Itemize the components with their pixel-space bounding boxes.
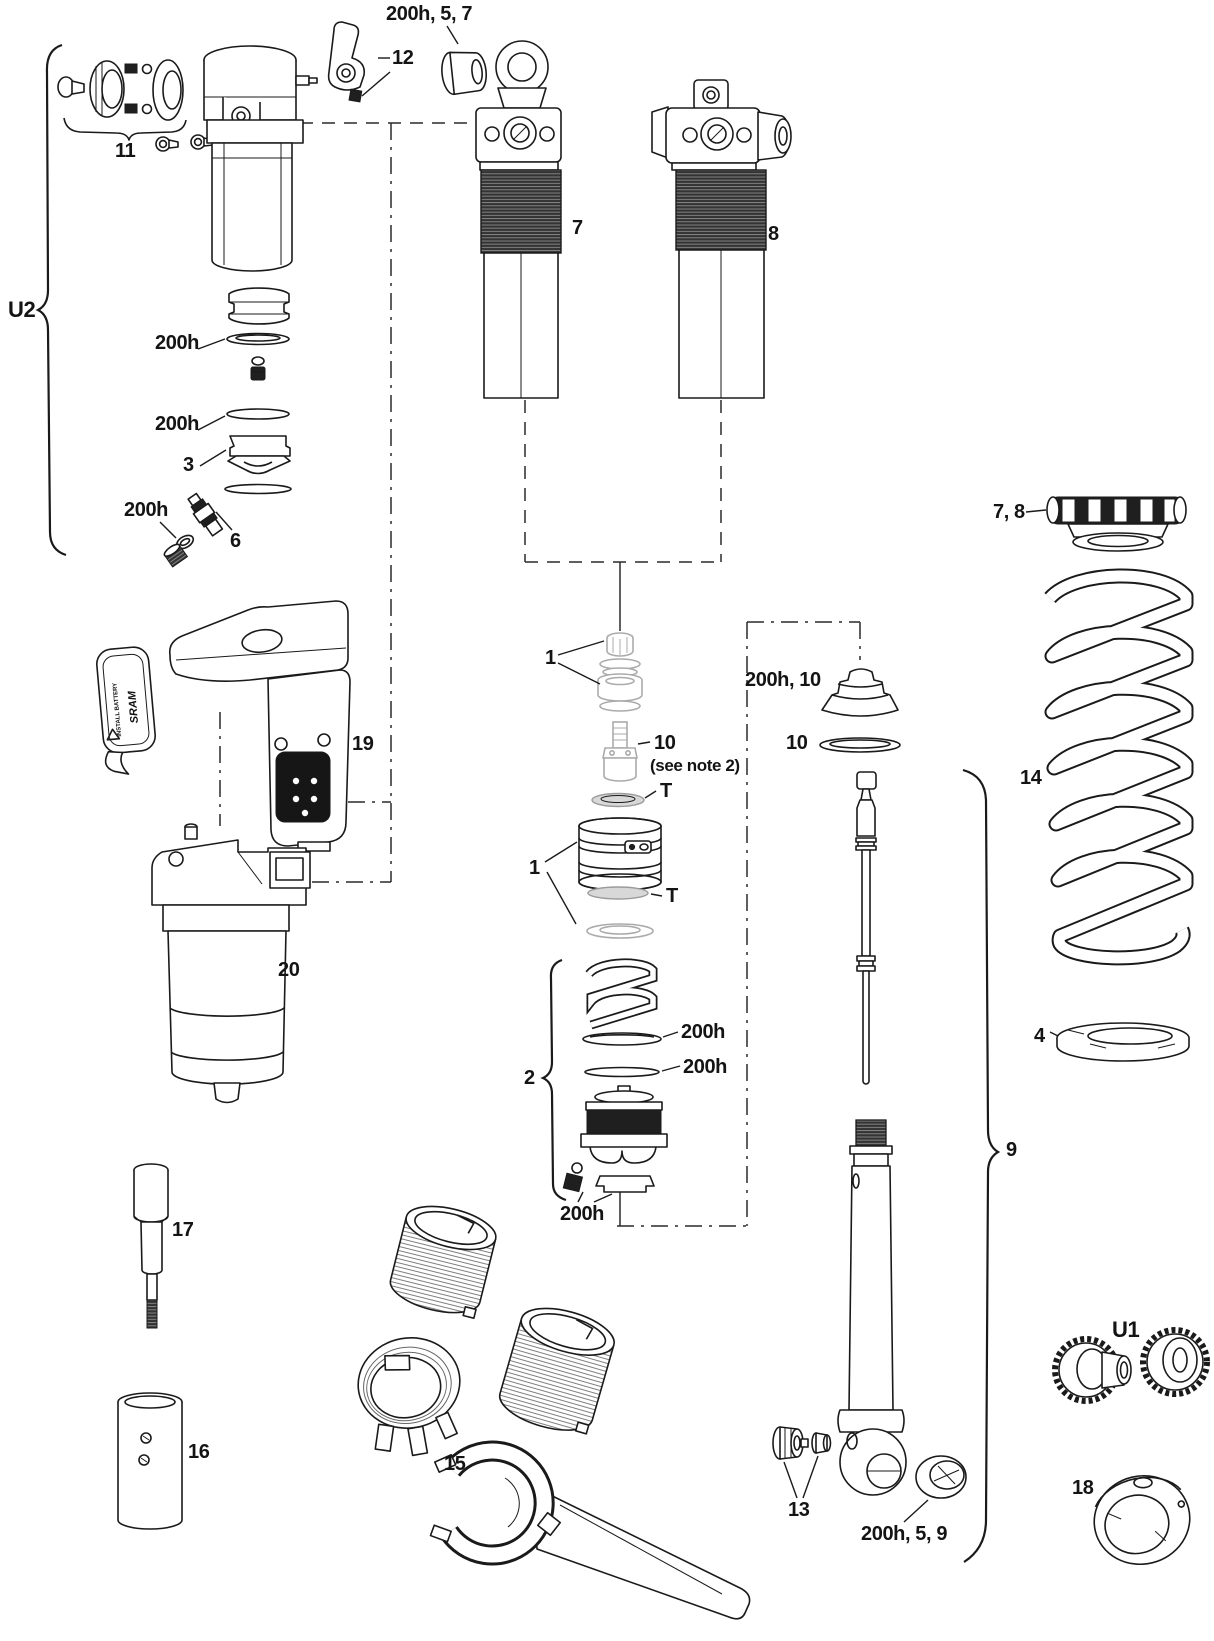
t-washer-lower-drawing bbox=[588, 887, 648, 899]
top-bushing-drawing bbox=[440, 49, 488, 95]
air-cap-group-drawing bbox=[598, 633, 642, 711]
washer-ten-drawing bbox=[820, 738, 900, 752]
label-eyelet-bushing: 200h, 5, 9 bbox=[861, 1524, 947, 1545]
label-top-hardware: 200h, 5, 7 bbox=[386, 4, 472, 25]
rebound-piston-drawing bbox=[563, 1086, 667, 1192]
shock-body-7-drawing bbox=[476, 41, 561, 398]
label-oring-valve: 200h bbox=[124, 500, 168, 521]
label-piston-1b: 1 bbox=[529, 858, 540, 879]
label-body-7: 7 bbox=[572, 218, 583, 239]
t-washer-upper-drawing bbox=[592, 794, 644, 807]
wiper-seal-drawing bbox=[822, 669, 898, 716]
label-body-8: 8 bbox=[768, 224, 779, 245]
label-tool-16: 16 bbox=[188, 1442, 209, 1463]
wrench-drawing bbox=[430, 1451, 749, 1619]
main-piston-drawing bbox=[579, 818, 661, 890]
spring-seat-drawing bbox=[1057, 1023, 1189, 1061]
rebound-brace bbox=[543, 960, 566, 1200]
motor-assembly-drawing bbox=[204, 46, 317, 271]
valve-core-drawing bbox=[603, 722, 637, 781]
label-t-upper: T bbox=[660, 781, 672, 802]
label-collar-78: 7, 8 bbox=[993, 502, 1025, 523]
retainer-cup-drawing bbox=[1085, 1466, 1199, 1575]
tool-rod-drawing bbox=[134, 1164, 168, 1328]
label-seal-head-3: 3 bbox=[183, 455, 194, 476]
coil-spring-drawing bbox=[1050, 576, 1186, 958]
sleeve-a-drawing bbox=[386, 1198, 500, 1320]
label-seal-kit: 200h, 10 bbox=[745, 670, 821, 691]
sleeve-c-drawing bbox=[495, 1299, 620, 1439]
battery-cover-drawing: INSTALL BATTERY SRAM bbox=[96, 646, 159, 776]
parts-diagram-page: INSTALL BATTERY SRAM bbox=[0, 0, 1214, 1641]
sleeve-ring-drawing bbox=[351, 1330, 472, 1463]
label-seat-4: 4 bbox=[1034, 1026, 1045, 1047]
u2-brace bbox=[38, 45, 66, 555]
control-module-drawing bbox=[170, 601, 350, 851]
label-oring-left-lower: 200h bbox=[155, 414, 199, 435]
diagram-line-art: INSTALL BATTERY SRAM bbox=[0, 0, 1214, 1641]
eyelet-bushing-drawing bbox=[916, 1456, 966, 1498]
label-u1: U1 bbox=[1112, 1318, 1139, 1341]
label-u2: U2 bbox=[8, 298, 35, 321]
label-nut-13: 13 bbox=[788, 1500, 809, 1521]
label-cup-18: 18 bbox=[1072, 1478, 1093, 1499]
label-oring-left-upper: 200h bbox=[155, 333, 199, 354]
label-damper-9: 9 bbox=[1006, 1140, 1017, 1161]
damper-body-drawing bbox=[838, 1120, 906, 1495]
needle-shaft-drawing bbox=[856, 772, 876, 1084]
label-washer-10: 10 bbox=[786, 733, 807, 754]
tool-tube-drawing bbox=[118, 1393, 182, 1529]
shaft-nut-drawing bbox=[773, 1427, 831, 1459]
label-mount-11: 11 bbox=[115, 141, 135, 162]
ghost-washer-drawing bbox=[587, 924, 653, 938]
damper-group-brace bbox=[963, 770, 998, 1562]
label-piston-1a: 1 bbox=[545, 648, 556, 669]
label-rebound-2: 2 bbox=[524, 1068, 535, 1089]
label-valve-6: 6 bbox=[230, 531, 241, 552]
label-lever-12: 12 bbox=[392, 48, 413, 69]
label-wrench-15: 15 bbox=[444, 1454, 465, 1475]
lever-drawing bbox=[329, 22, 365, 102]
rebound-orings-drawing bbox=[583, 1033, 661, 1077]
label-module-19: 19 bbox=[352, 734, 373, 755]
mount-hardware-drawing bbox=[58, 60, 213, 151]
label-tool-17: 17 bbox=[172, 1220, 193, 1241]
label-reservoir-20: 20 bbox=[278, 960, 299, 981]
rebound-spring-drawing bbox=[589, 963, 653, 1025]
label-oring-bottom: 200h bbox=[560, 1204, 604, 1225]
label-note-2: (see note 2) bbox=[650, 757, 740, 775]
label-spring-14: 14 bbox=[1020, 768, 1041, 789]
preload-collar-drawing bbox=[1047, 497, 1186, 551]
label-oring-mid-lower: 200h bbox=[683, 1057, 727, 1078]
label-t-lower: T bbox=[666, 886, 678, 907]
label-oring-mid-upper: 200h bbox=[681, 1022, 725, 1043]
label-valve-core-10: 10 bbox=[654, 733, 675, 754]
